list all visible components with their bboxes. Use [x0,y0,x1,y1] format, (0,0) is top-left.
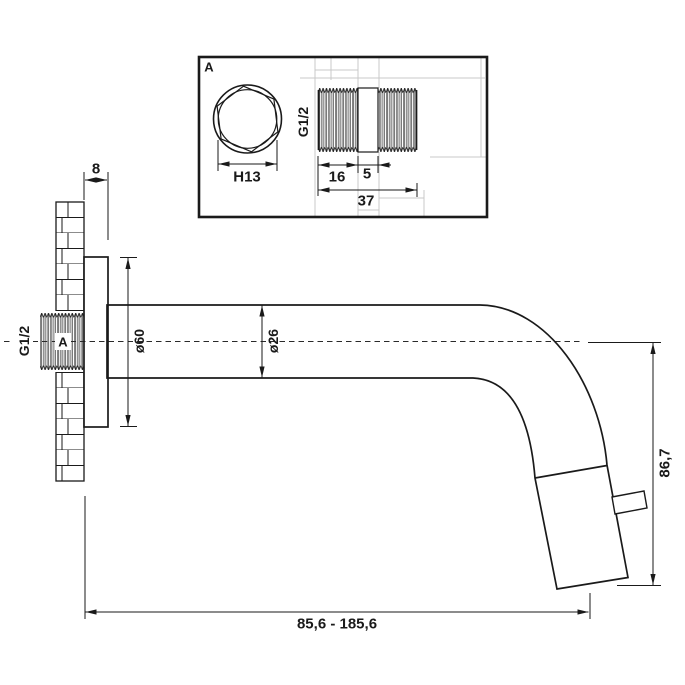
technical-drawing-canvas: A H13 G1/2 16 5 37 G1/2 A [0,0,685,685]
outlet-height-label: 86,7 [657,448,674,477]
detail-thread-size-label: G1/2 [295,107,311,138]
ring-length-label: 5 [363,166,371,183]
thread-length-label: 16 [329,169,346,186]
plate-depth-label: 8 [92,161,100,178]
smooth-ring [358,88,378,152]
spout-diameter-label: ø26 [265,329,281,353]
outer-chamfer-circle [214,85,282,153]
hex-end-view [214,85,282,153]
side-knob [612,491,647,514]
thread-callout-label: A [58,335,68,350]
main-thread-size-label: G1/2 [16,326,32,357]
thread-nipple-detail [318,88,417,152]
total-length-label: 37 [358,193,375,210]
dim-plate-depth: 8 [84,161,108,241]
thread-section-right [378,88,417,152]
reach-range-label: 85,6 - 185,6 [297,616,377,633]
flange-diameter-label: ø60 [131,329,147,353]
thread-section-left [318,88,358,152]
dim-reach-range: 85,6 - 185,6 [85,496,590,633]
hex-dimension-label: H13 [233,169,261,186]
spout-body-fill [107,305,628,589]
spout-dimension-drawing: A H13 G1/2 16 5 37 G1/2 A [0,0,685,685]
detail-box: A H13 G1/2 16 5 37 [199,57,487,217]
detail-label: A [204,60,214,75]
